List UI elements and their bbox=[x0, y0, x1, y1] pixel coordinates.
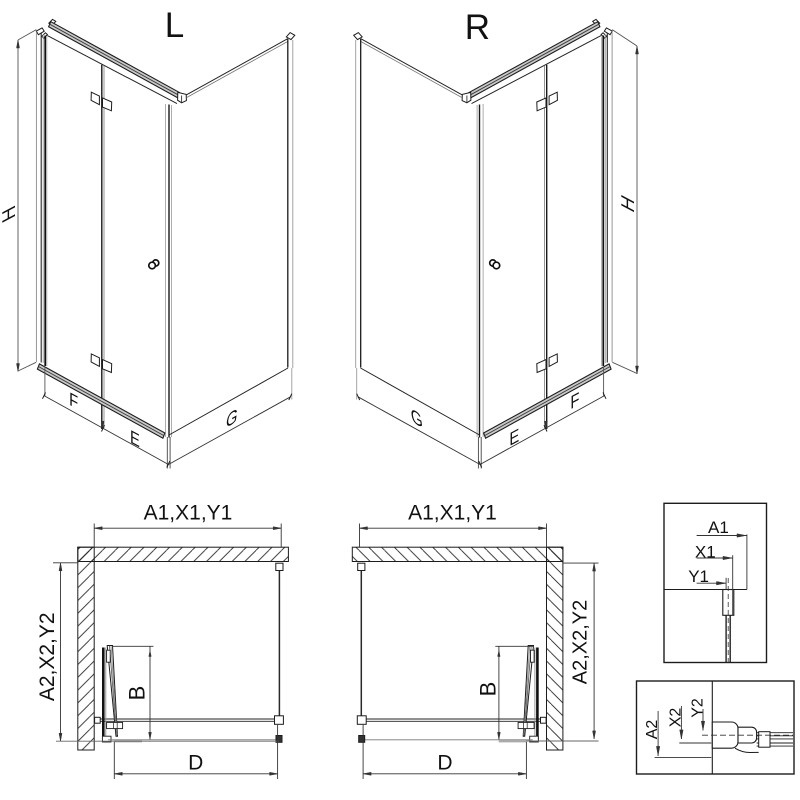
svg-text:A2,X2,Y2: A2,X2,Y2 bbox=[570, 600, 592, 685]
svg-text:A1,X1,Y1: A1,X1,Y1 bbox=[144, 502, 233, 525]
svg-text:R: R bbox=[465, 8, 490, 47]
svg-text:D: D bbox=[188, 751, 203, 774]
svg-text:A2,X2,Y2: A2,X2,Y2 bbox=[36, 612, 59, 701]
svg-text:X2: X2 bbox=[668, 708, 685, 728]
svg-text:L: L bbox=[165, 6, 184, 45]
svg-text:A2: A2 bbox=[644, 720, 661, 740]
svg-text:B: B bbox=[476, 682, 501, 697]
svg-text:Y1: Y1 bbox=[688, 567, 709, 586]
svg-text:D: D bbox=[437, 751, 452, 774]
svg-text:B: B bbox=[125, 686, 150, 701]
svg-text:A1: A1 bbox=[708, 518, 729, 537]
svg-text:A1,X1,Y1: A1,X1,Y1 bbox=[408, 502, 497, 525]
svg-text:X1: X1 bbox=[695, 543, 716, 562]
svg-text:Y2: Y2 bbox=[689, 698, 706, 718]
